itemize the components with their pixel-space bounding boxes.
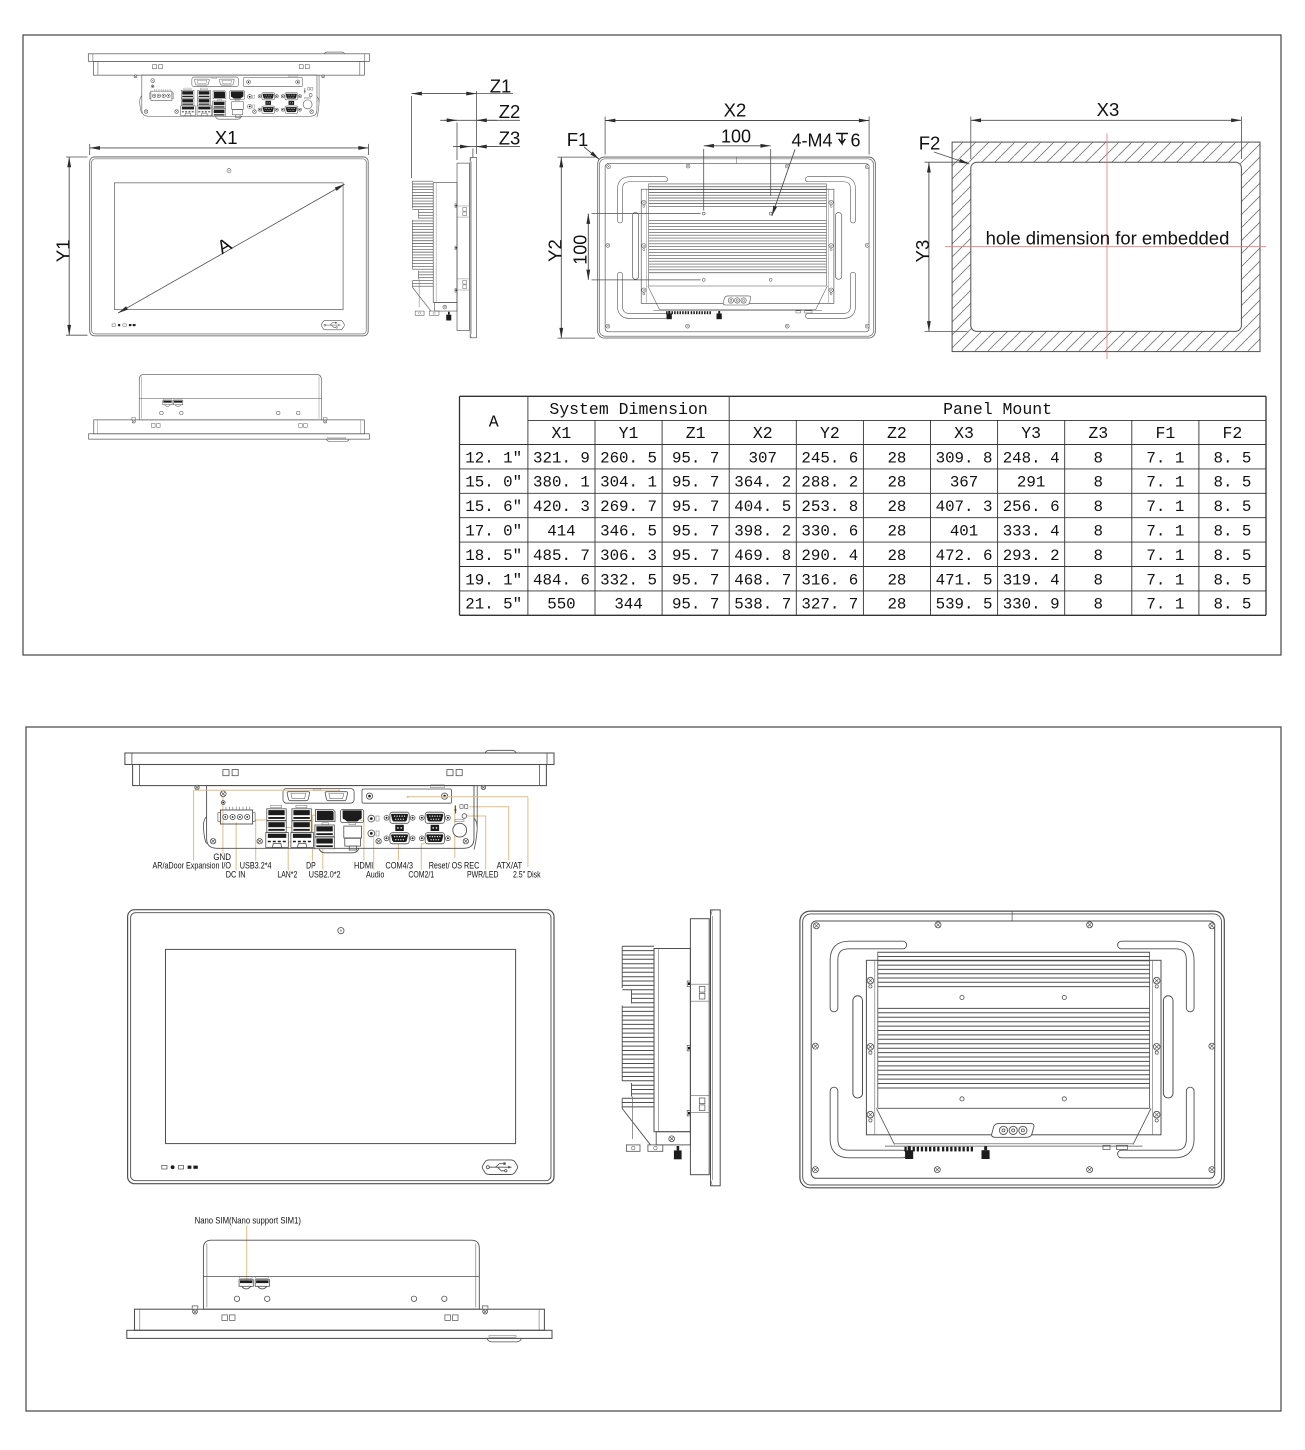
svg-text:327. 7: 327. 7 [801, 596, 858, 614]
svg-text:100: 100 [721, 127, 751, 147]
svg-text:7. 1: 7. 1 [1146, 523, 1184, 541]
svg-text:DC IN: DC IN [226, 870, 246, 881]
svg-text:404. 5: 404. 5 [734, 498, 791, 516]
svg-text:7. 1: 7. 1 [1146, 498, 1184, 516]
svg-text:A: A [489, 413, 499, 432]
svg-text:COM2/1: COM2/1 [408, 870, 434, 881]
svg-text:Y3: Y3 [912, 240, 933, 263]
svg-text:F1: F1 [567, 129, 589, 150]
svg-text:Panel Mount: Panel Mount [943, 400, 1052, 419]
svg-text:Y2: Y2 [820, 424, 840, 443]
svg-text:330. 9: 330. 9 [1003, 596, 1060, 614]
svg-text:Nano SIM(Nano support SIM1): Nano SIM(Nano support SIM1) [195, 1216, 301, 1227]
svg-text:538. 7: 538. 7 [734, 596, 791, 614]
svg-text:System Dimension: System Dimension [549, 400, 707, 419]
svg-text:7. 1: 7. 1 [1146, 571, 1184, 589]
svg-text:8. 5: 8. 5 [1213, 474, 1251, 492]
svg-text:15. 0": 15. 0" [465, 474, 522, 492]
svg-text:306. 3: 306. 3 [600, 547, 657, 565]
svg-text:Audio: Audio [366, 870, 384, 881]
svg-text:12. 1": 12. 1" [465, 449, 522, 467]
svg-text:8: 8 [1094, 498, 1103, 516]
svg-text:28: 28 [887, 571, 906, 589]
svg-text:7. 1: 7. 1 [1146, 547, 1184, 565]
svg-text:28: 28 [887, 523, 906, 541]
svg-text:95. 7: 95. 7 [672, 523, 719, 541]
svg-text:245. 6: 245. 6 [801, 449, 858, 467]
svg-text:Z3: Z3 [1088, 424, 1108, 443]
svg-text:8: 8 [1094, 596, 1103, 614]
svg-text:288. 2: 288. 2 [801, 474, 858, 492]
svg-text:253. 8: 253. 8 [801, 498, 858, 516]
svg-text:Z1: Z1 [490, 76, 512, 97]
svg-text:95. 7: 95. 7 [672, 571, 719, 589]
svg-text:28: 28 [887, 474, 906, 492]
svg-text:8. 5: 8. 5 [1213, 571, 1251, 589]
svg-text:PWR/LED: PWR/LED [467, 870, 499, 881]
svg-text:291: 291 [1017, 474, 1045, 492]
svg-text:8. 5: 8. 5 [1213, 498, 1251, 516]
svg-text:304. 1: 304. 1 [600, 474, 657, 492]
svg-text:269. 7: 269. 7 [600, 498, 657, 516]
svg-text:8: 8 [1094, 449, 1103, 467]
svg-text:28: 28 [887, 449, 906, 467]
svg-text:420. 3: 420. 3 [533, 498, 590, 516]
svg-text:15. 6": 15. 6" [465, 498, 522, 516]
svg-text:6: 6 [850, 131, 860, 151]
svg-text:28: 28 [887, 596, 906, 614]
svg-text:333. 4: 333. 4 [1003, 523, 1060, 541]
svg-text:309. 8: 309. 8 [936, 449, 993, 467]
svg-text:Y1: Y1 [619, 424, 639, 443]
svg-text:7. 1: 7. 1 [1146, 449, 1184, 467]
svg-text:407. 3: 407. 3 [936, 498, 993, 516]
svg-text:8: 8 [1094, 523, 1103, 541]
svg-text:2.5" Disk: 2.5" Disk [513, 870, 541, 881]
svg-text:485. 7: 485. 7 [533, 547, 590, 565]
svg-text:F1: F1 [1155, 424, 1175, 443]
svg-text:8. 5: 8. 5 [1213, 596, 1251, 614]
svg-text:A: A [214, 234, 236, 259]
svg-text:95. 7: 95. 7 [672, 474, 719, 492]
svg-text:398. 2: 398. 2 [734, 523, 791, 541]
svg-text:539. 5: 539. 5 [936, 596, 993, 614]
svg-text:X1: X1 [552, 424, 572, 443]
svg-text:7. 1: 7. 1 [1146, 596, 1184, 614]
svg-text:321. 9: 321. 9 [533, 449, 590, 467]
svg-text:X2: X2 [724, 100, 747, 121]
svg-text:256. 6: 256. 6 [1003, 498, 1060, 516]
svg-text:8: 8 [1094, 474, 1103, 492]
svg-text:AR/aDoor Expansion I/O: AR/aDoor Expansion I/O [153, 861, 232, 872]
svg-text:19. 1": 19. 1" [465, 571, 522, 589]
svg-text:472. 6: 472. 6 [936, 547, 993, 565]
svg-text:hole dimension for embedded: hole dimension for embedded [986, 228, 1230, 249]
svg-text:8. 5: 8. 5 [1213, 449, 1251, 467]
svg-text:346. 5: 346. 5 [600, 523, 657, 541]
svg-text:8: 8 [1094, 547, 1103, 565]
svg-text:380. 1: 380. 1 [533, 474, 590, 492]
svg-text:307: 307 [749, 449, 777, 467]
svg-text:550: 550 [547, 596, 575, 614]
svg-text:468. 7: 468. 7 [734, 571, 791, 589]
svg-text:F2: F2 [919, 133, 941, 154]
svg-text:Y3: Y3 [1021, 424, 1041, 443]
svg-text:18. 5": 18. 5" [465, 547, 522, 565]
svg-text:X1: X1 [215, 127, 238, 148]
svg-text:293. 2: 293. 2 [1003, 547, 1060, 565]
svg-text:Z3: Z3 [499, 128, 521, 149]
svg-text:F2: F2 [1223, 424, 1243, 443]
svg-text:7. 1: 7. 1 [1146, 474, 1184, 492]
svg-text:Z2: Z2 [499, 101, 521, 122]
svg-text:Y2: Y2 [545, 239, 566, 262]
svg-text:332. 5: 332. 5 [600, 571, 657, 589]
svg-text:290. 4: 290. 4 [801, 547, 858, 565]
svg-text:469. 8: 469. 8 [734, 547, 791, 565]
svg-text:248. 4: 248. 4 [1003, 449, 1060, 467]
svg-text:X3: X3 [954, 424, 974, 443]
svg-text:95. 7: 95. 7 [672, 449, 719, 467]
svg-text:401: 401 [950, 523, 978, 541]
svg-text:8: 8 [1094, 571, 1103, 589]
svg-text:28: 28 [887, 547, 906, 565]
svg-text:95. 7: 95. 7 [672, 596, 719, 614]
svg-text:344: 344 [614, 596, 642, 614]
svg-text:Y1: Y1 [53, 239, 74, 262]
svg-text:367: 367 [950, 474, 978, 492]
svg-text:100: 100 [570, 235, 590, 265]
svg-text:95. 7: 95. 7 [672, 547, 719, 565]
svg-text:LAN*2: LAN*2 [277, 870, 297, 881]
svg-text:319. 4: 319. 4 [1003, 571, 1060, 589]
svg-text:Z2: Z2 [887, 424, 907, 443]
svg-text:484. 6: 484. 6 [533, 571, 590, 589]
svg-text:X3: X3 [1097, 99, 1120, 120]
svg-text:414: 414 [547, 523, 575, 541]
svg-text:USB2.0*2: USB2.0*2 [309, 870, 341, 881]
svg-text:330. 6: 330. 6 [801, 523, 858, 541]
svg-text:28: 28 [887, 498, 906, 516]
svg-text:4-M4: 4-M4 [791, 131, 832, 151]
svg-text:471. 5: 471. 5 [936, 571, 993, 589]
svg-text:8. 5: 8. 5 [1213, 523, 1251, 541]
svg-text:Z1: Z1 [686, 424, 706, 443]
svg-text:95. 7: 95. 7 [672, 498, 719, 516]
svg-text:260. 5: 260. 5 [600, 449, 657, 467]
svg-text:X2: X2 [753, 424, 773, 443]
svg-text:316. 6: 316. 6 [801, 571, 858, 589]
svg-text:364. 2: 364. 2 [734, 474, 791, 492]
svg-text:8. 5: 8. 5 [1213, 547, 1251, 565]
svg-text:17. 0": 17. 0" [465, 523, 522, 541]
svg-text:21. 5": 21. 5" [465, 596, 522, 614]
